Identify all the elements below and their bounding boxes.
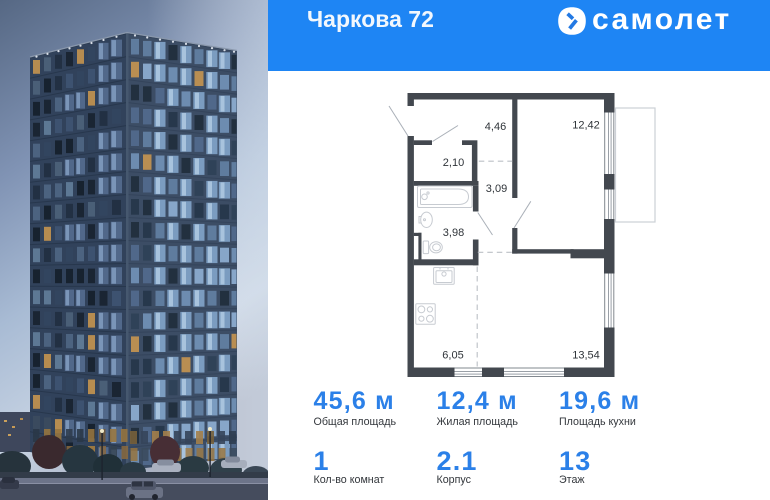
svg-text:2,10: 2,10 bbox=[443, 157, 464, 169]
svg-text:3,09: 3,09 bbox=[486, 183, 507, 195]
svg-text:13,54: 13,54 bbox=[572, 350, 600, 362]
svg-text:12,42: 12,42 bbox=[572, 120, 600, 132]
svg-text:6,05: 6,05 bbox=[442, 350, 463, 362]
svg-text:3,98: 3,98 bbox=[443, 227, 464, 239]
svg-text:4,46: 4,46 bbox=[485, 121, 506, 133]
